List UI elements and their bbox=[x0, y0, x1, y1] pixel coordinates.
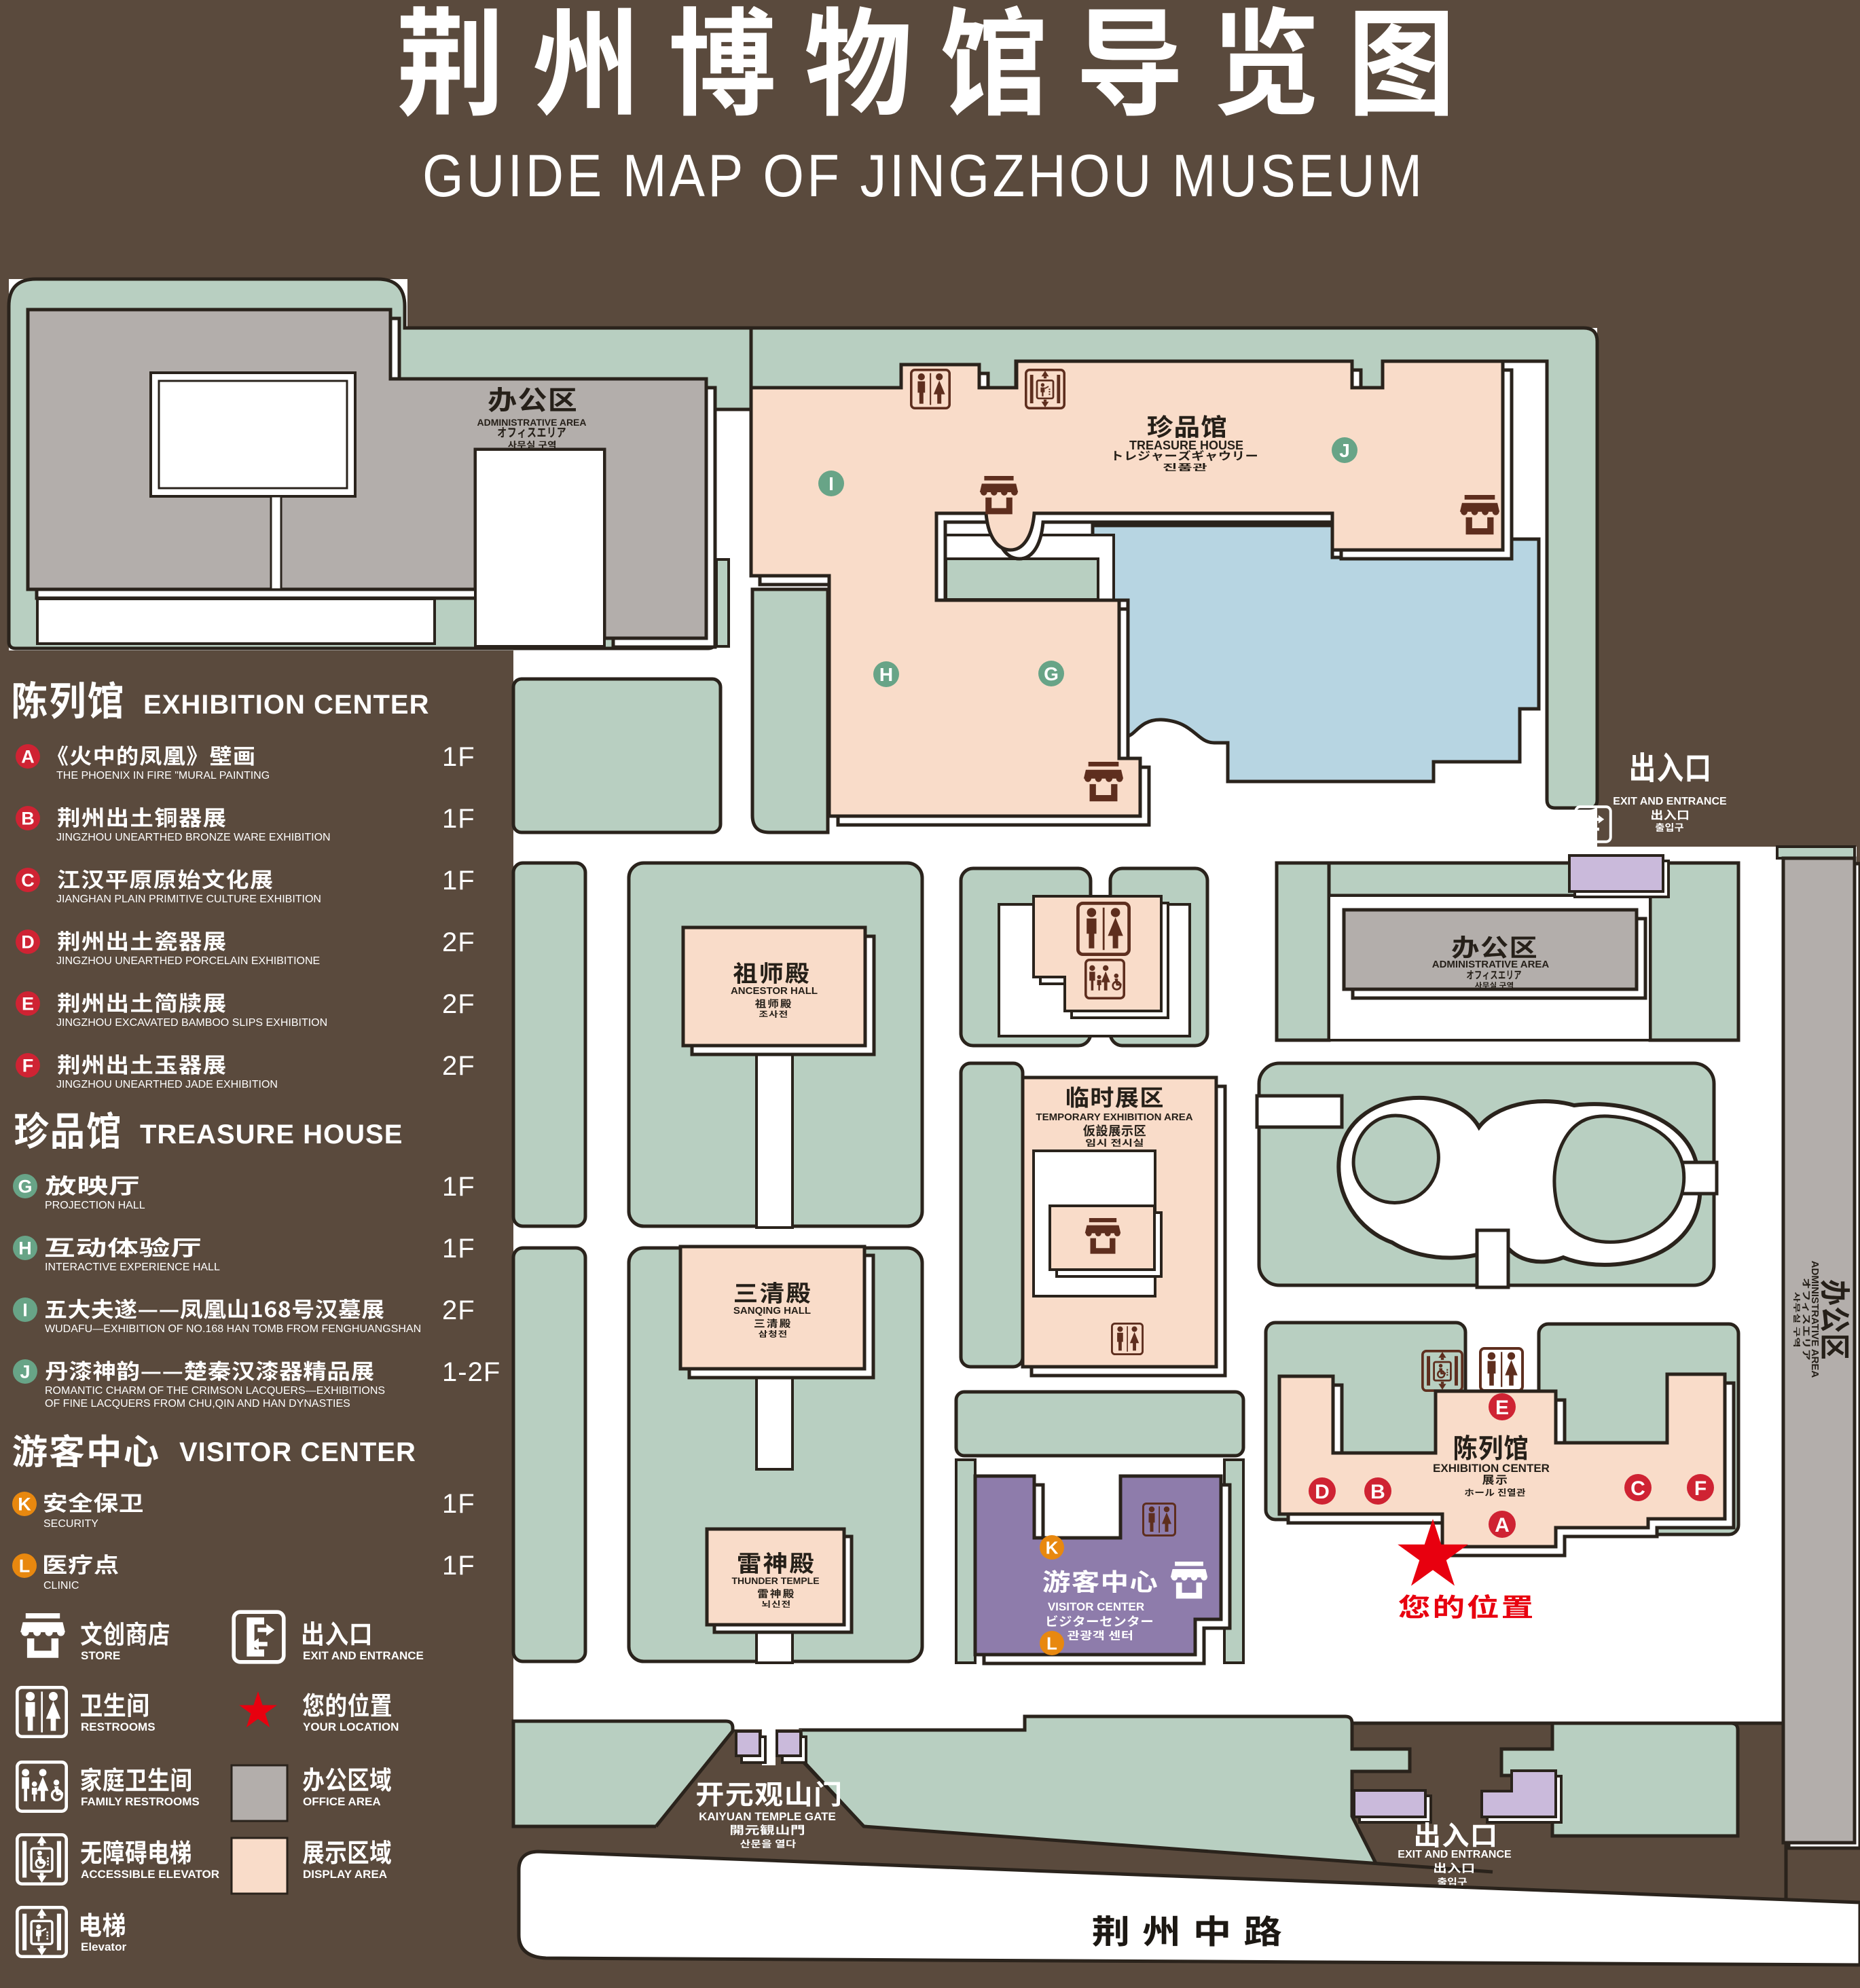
svg-text:OF FINE LACQUERS FROM CHU,QIN: OF FINE LACQUERS FROM CHU,QIN AND HAN DY… bbox=[45, 1398, 350, 1410]
svg-text:THUNDER TEMPLE: THUNDER TEMPLE bbox=[731, 1575, 819, 1586]
svg-text:WUDAFU—EXHIBITION OF NO.168 HA: WUDAFU—EXHIBITION OF NO.168 HAN TOMB FRO… bbox=[45, 1323, 421, 1335]
svg-text:F: F bbox=[1694, 1477, 1707, 1500]
svg-text:C: C bbox=[21, 870, 35, 891]
svg-text:VISITOR CENTER: VISITOR CENTER bbox=[1048, 1600, 1144, 1613]
svg-text:A: A bbox=[1495, 1514, 1510, 1536]
svg-text:1F: 1F bbox=[442, 1172, 475, 1202]
svg-text:JINGZHOU UNEARTHED PORCELAIN E: JINGZHOU UNEARTHED PORCELAIN EXHIBITIONE bbox=[56, 955, 320, 967]
svg-text:INTERACTIVE EXPERIENCE HALL: INTERACTIVE EXPERIENCE HALL bbox=[45, 1262, 220, 1273]
svg-text:KAIYUAN TEMPLE GATE: KAIYUAN TEMPLE GATE bbox=[699, 1810, 836, 1823]
svg-text:GUIDE MAP OF JINGZHOU MUSEUM: GUIDE MAP OF JINGZHOU MUSEUM bbox=[422, 143, 1425, 209]
svg-text:A: A bbox=[21, 747, 35, 767]
svg-text:THE PHOENIX IN FIRE "MURAL PAI: THE PHOENIX IN FIRE "MURAL PAINTING bbox=[56, 770, 270, 781]
svg-text:D: D bbox=[21, 932, 35, 953]
svg-text:2F: 2F bbox=[442, 1295, 475, 1325]
svg-text:1F: 1F bbox=[442, 804, 475, 834]
svg-text:CLINIC: CLINIC bbox=[43, 1580, 79, 1591]
svg-text:1F: 1F bbox=[442, 866, 475, 896]
svg-text:G: G bbox=[1044, 663, 1059, 684]
svg-text:E: E bbox=[22, 994, 34, 1014]
svg-text:Elevator: Elevator bbox=[81, 1940, 126, 1953]
svg-text:ADMINISTRATIVE AREA: ADMINISTRATIVE AREA bbox=[477, 417, 587, 428]
svg-text:DISPLAY AREA: DISPLAY AREA bbox=[303, 1868, 387, 1881]
svg-text:ANCESTOR HALL: ANCESTOR HALL bbox=[731, 985, 818, 997]
svg-text:SANQING HALL: SANQING HALL bbox=[733, 1305, 811, 1317]
svg-text:J: J bbox=[20, 1362, 30, 1382]
svg-text:1F: 1F bbox=[442, 1489, 475, 1519]
svg-text:L: L bbox=[19, 1556, 31, 1577]
svg-text:ADMINISTRATIVE AREA: ADMINISTRATIVE AREA bbox=[1432, 959, 1550, 970]
svg-text:1F: 1F bbox=[442, 1234, 475, 1264]
svg-text:C: C bbox=[1630, 1477, 1645, 1500]
svg-text:E: E bbox=[1495, 1397, 1509, 1419]
svg-text:J: J bbox=[1339, 440, 1350, 461]
svg-text:EXHIBITION CENTER: EXHIBITION CENTER bbox=[143, 690, 429, 720]
svg-text:B: B bbox=[21, 809, 35, 829]
svg-text:2F: 2F bbox=[442, 927, 475, 957]
svg-text:RESTROOMS: RESTROOMS bbox=[81, 1720, 156, 1733]
svg-text:G: G bbox=[18, 1177, 32, 1197]
svg-text:2F: 2F bbox=[442, 1051, 475, 1081]
svg-text:SECURITY: SECURITY bbox=[43, 1518, 98, 1530]
svg-text:B: B bbox=[1370, 1481, 1385, 1503]
svg-text:EXIT AND ENTRANCE: EXIT AND ENTRANCE bbox=[1613, 796, 1727, 807]
svg-text:K: K bbox=[1046, 1537, 1059, 1558]
svg-text:ADMINISTRATIVE AREA: ADMINISTRATIVE AREA bbox=[1809, 1261, 1821, 1378]
svg-text:L: L bbox=[1046, 1633, 1057, 1653]
svg-text:1F: 1F bbox=[442, 1551, 475, 1581]
svg-text:JIANGHAN PLAIN PRIMITIVE CULTU: JIANGHAN PLAIN PRIMITIVE CULTURE EXHIBIT… bbox=[56, 894, 321, 905]
svg-text:1F: 1F bbox=[442, 742, 475, 772]
svg-text:STORE: STORE bbox=[81, 1649, 120, 1662]
svg-text:F: F bbox=[22, 1056, 34, 1076]
svg-text:EXIT AND ENTRANCE: EXIT AND ENTRANCE bbox=[303, 1649, 424, 1662]
svg-text:H: H bbox=[18, 1238, 32, 1259]
svg-text:TREASURE HOUSE: TREASURE HOUSE bbox=[1129, 439, 1243, 452]
svg-text:I: I bbox=[22, 1300, 28, 1321]
svg-text:YOUR LOCATION: YOUR LOCATION bbox=[303, 1720, 399, 1733]
svg-text:FAMILY RESTROOMS: FAMILY RESTROOMS bbox=[81, 1795, 200, 1808]
svg-text:VISITOR CENTER: VISITOR CENTER bbox=[179, 1437, 416, 1467]
svg-text:H: H bbox=[879, 664, 893, 685]
svg-text:1-2F: 1-2F bbox=[442, 1357, 500, 1387]
svg-text:ROMANTIC CHARM OF THE CRIMSON: ROMANTIC CHARM OF THE CRIMSON LACQUERS—E… bbox=[45, 1385, 385, 1397]
svg-text:JINGZHOU EXCAVATED BAMBOO SLIP: JINGZHOU EXCAVATED BAMBOO SLIPS EXHIBITI… bbox=[56, 1017, 327, 1029]
svg-text:JINGZHOU UNEARTHED JADE EXHIBI: JINGZHOU UNEARTHED JADE EXHIBITION bbox=[56, 1079, 278, 1090]
svg-text:ACCESSIBLE ELEVATOR: ACCESSIBLE ELEVATOR bbox=[81, 1868, 219, 1881]
svg-text:TEMPORARY EXHIBITION AREA: TEMPORARY EXHIBITION AREA bbox=[1036, 1111, 1192, 1123]
svg-text:EXHIBITION CENTER: EXHIBITION CENTER bbox=[1433, 1462, 1550, 1475]
svg-text:JINGZHOU UNEARTHED BRONZE WARE: JINGZHOU UNEARTHED BRONZE WARE EXHIBITIO… bbox=[56, 832, 331, 843]
svg-text:EXIT AND ENTRANCE: EXIT AND ENTRANCE bbox=[1398, 1849, 1512, 1860]
svg-text:2F: 2F bbox=[442, 989, 475, 1019]
svg-text:I: I bbox=[828, 473, 834, 494]
svg-text:OFFICE AREA: OFFICE AREA bbox=[303, 1795, 381, 1808]
svg-text:K: K bbox=[18, 1494, 31, 1515]
svg-text:D: D bbox=[1315, 1481, 1330, 1503]
svg-text:TREASURE HOUSE: TREASURE HOUSE bbox=[140, 1120, 403, 1149]
svg-text:PROJECTION HALL: PROJECTION HALL bbox=[45, 1200, 145, 1211]
